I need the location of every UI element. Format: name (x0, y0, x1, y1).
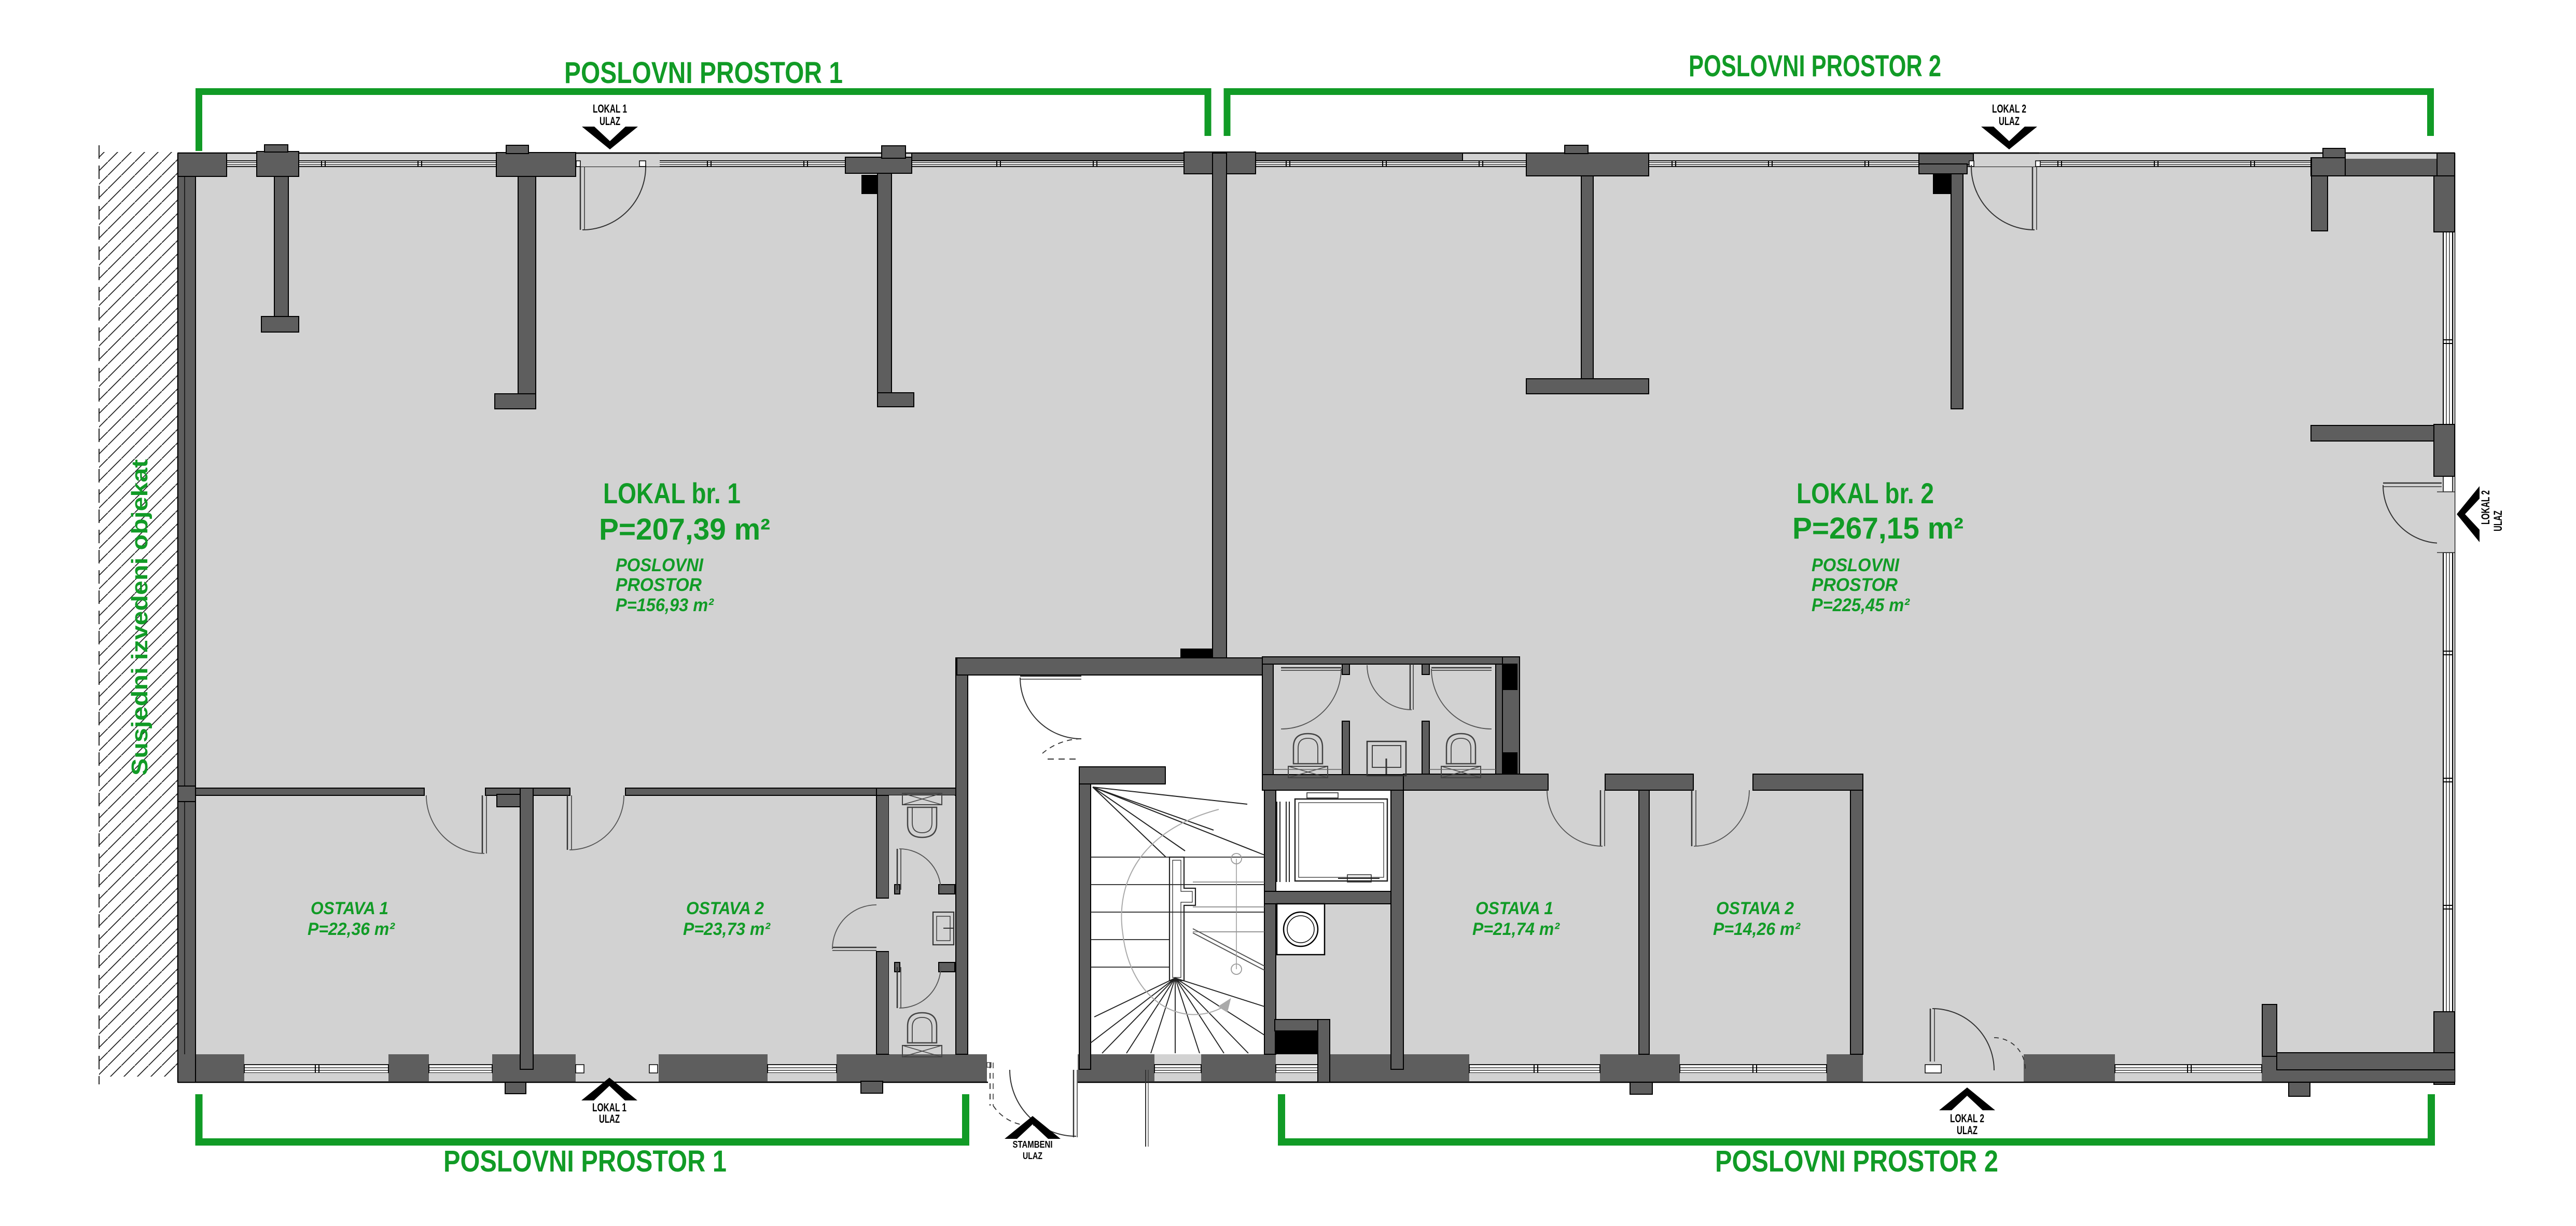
svg-text:POSLOVNI PROSTOR 2: POSLOVNI PROSTOR 2 (1715, 1145, 1998, 1178)
svg-text:POSLOVNI: POSLOVNI (1812, 555, 1900, 575)
svg-text:P=225,45 m²: P=225,45 m² (1812, 595, 1910, 615)
svg-text:P=21,74 m²: P=21,74 m² (1472, 919, 1561, 939)
svg-text:P=22,36 m²: P=22,36 m² (308, 919, 396, 939)
svg-text:Susjedni izvedeni objekat: Susjedni izvedeni objekat (127, 459, 152, 776)
svg-text:P=267,15 m²: P=267,15 m² (1792, 512, 1964, 545)
svg-text:LOKAL br. 2: LOKAL br. 2 (1797, 477, 1934, 509)
svg-text:OSTAVA 1: OSTAVA 1 (311, 899, 388, 918)
svg-text:P=14,26 m²: P=14,26 m² (1713, 919, 1801, 939)
svg-text:ULAZ: ULAZ (1999, 115, 2020, 128)
svg-text:P=156,93 m²: P=156,93 m² (616, 595, 714, 615)
svg-text:ULAZ: ULAZ (2491, 511, 2504, 531)
svg-text:LOKAL 2: LOKAL 2 (1992, 102, 2026, 115)
svg-text:POSLOVNI PROSTOR 1: POSLOVNI PROSTOR 1 (564, 56, 843, 90)
svg-text:POSLOVNI: POSLOVNI (616, 555, 704, 575)
svg-text:ULAZ: ULAZ (1023, 1151, 1042, 1161)
svg-text:LOKAL 2: LOKAL 2 (2479, 490, 2492, 525)
svg-text:ULAZ: ULAZ (600, 115, 620, 128)
svg-text:P=207,39 m²: P=207,39 m² (599, 513, 770, 546)
svg-text:PROSTOR: PROSTOR (616, 575, 702, 595)
svg-text:OSTAVA 2: OSTAVA 2 (686, 899, 764, 918)
svg-text:OSTAVA 2: OSTAVA 2 (1716, 899, 1794, 918)
svg-text:POSLOVNI PROSTOR 2: POSLOVNI PROSTOR 2 (1689, 49, 1941, 83)
svg-text:PROSTOR: PROSTOR (1812, 575, 1898, 595)
svg-text:LOKAL 2: LOKAL 2 (1950, 1112, 1984, 1125)
svg-text:LOKAL 1: LOKAL 1 (593, 102, 627, 115)
svg-text:ULAZ: ULAZ (1957, 1124, 1978, 1137)
svg-text:POSLOVNI PROSTOR 1: POSLOVNI PROSTOR 1 (443, 1145, 727, 1178)
svg-text:STAMBENI: STAMBENI (1013, 1139, 1053, 1150)
svg-text:OSTAVA 1: OSTAVA 1 (1475, 899, 1553, 918)
svg-text:P=23,73 m²: P=23,73 m² (683, 919, 771, 939)
svg-text:ULAZ: ULAZ (599, 1112, 620, 1125)
svg-text:LOKAL br. 1: LOKAL br. 1 (603, 477, 741, 509)
